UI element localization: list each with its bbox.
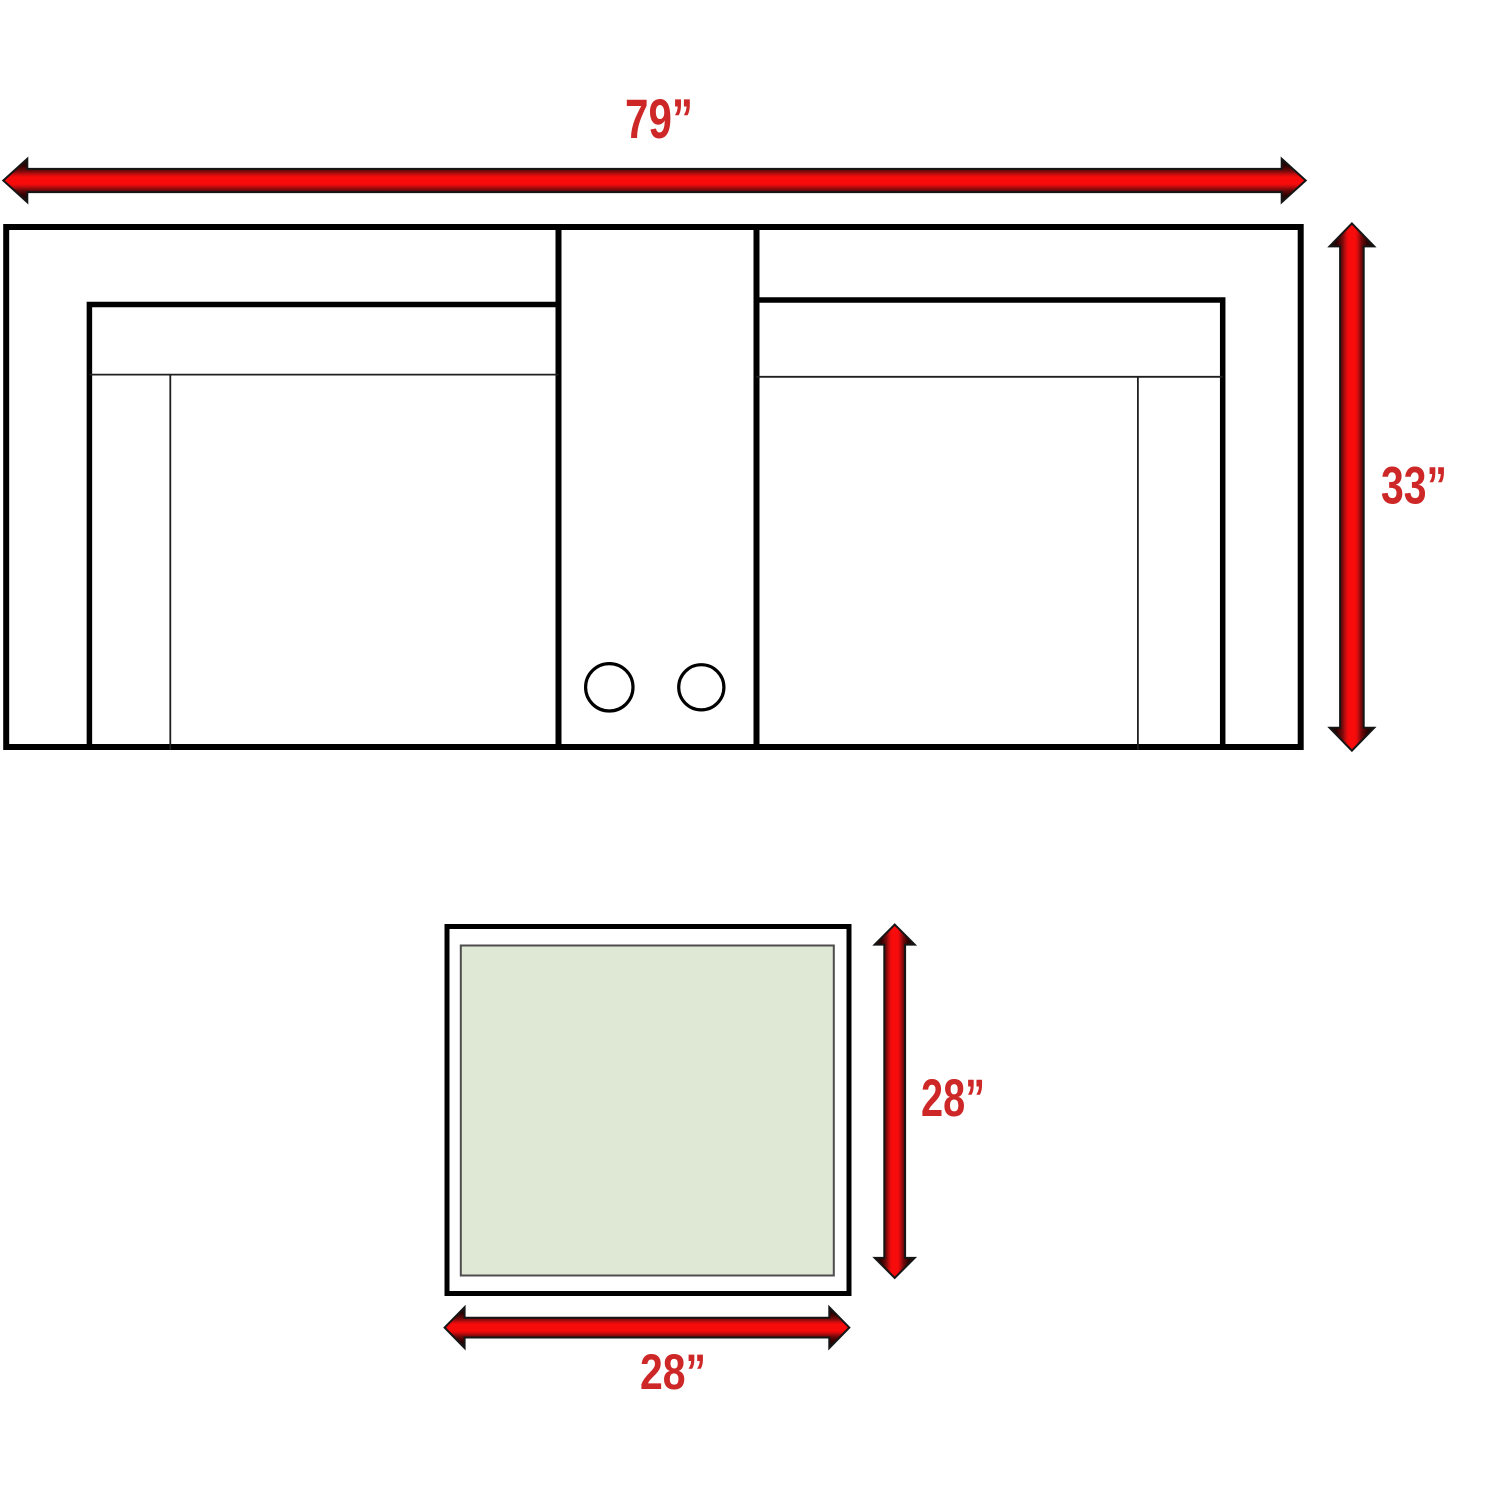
svg-text:28”: 28” xyxy=(640,1344,706,1400)
svg-text:33”: 33” xyxy=(1381,457,1447,516)
svg-text:79”: 79” xyxy=(625,87,693,150)
svg-text:28”: 28” xyxy=(921,1069,985,1128)
